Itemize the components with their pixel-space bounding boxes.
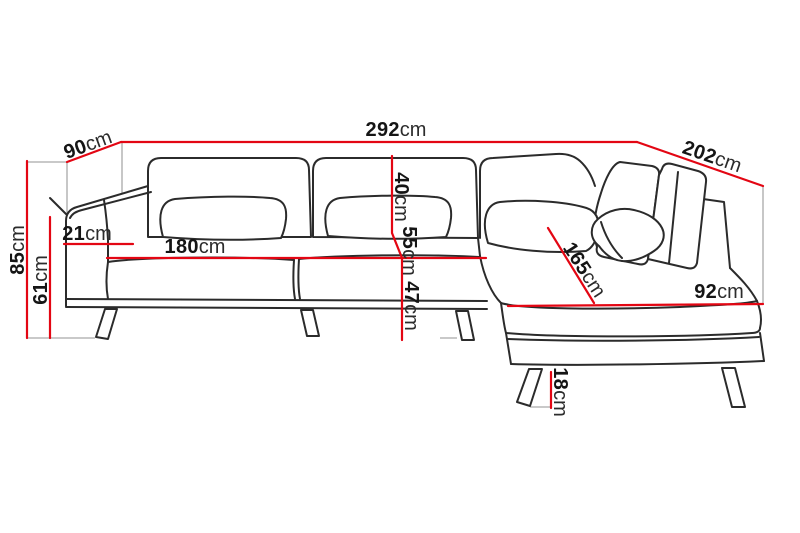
base-rail: [66, 299, 487, 309]
dim-line-chaise-width: [508, 304, 763, 306]
chaise-section: [480, 256, 764, 407]
left-armrest: [50, 186, 151, 306]
right-back-panel: [703, 199, 730, 268]
sofa-dimension-diagram: 292cm 90cm 202cm 85cm 61cm 21cm 180cm 40…: [0, 0, 800, 533]
sofa-line-drawing: [0, 0, 800, 533]
seat-cushions: [107, 255, 480, 299]
sofa-legs: [96, 309, 474, 340]
lumbar-pillows: [160, 196, 663, 262]
dim-line-left-depth: [67, 142, 121, 162]
